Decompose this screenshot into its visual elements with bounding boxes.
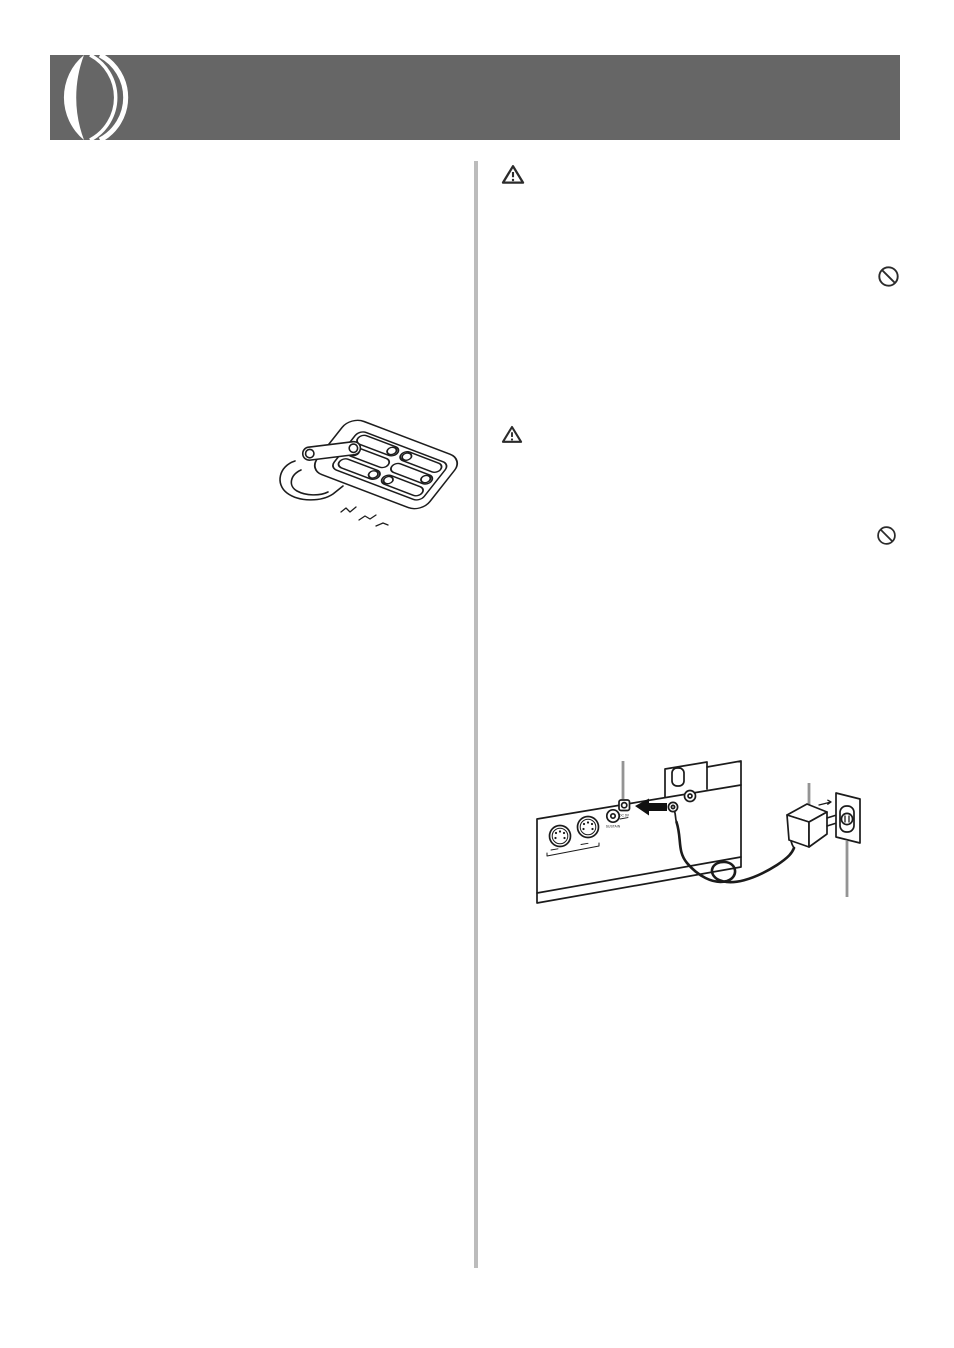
header-graphic	[50, 55, 900, 140]
sustain-jack-label: SUSTAIN	[606, 825, 621, 829]
dc-9v-jack: DC 9V	[619, 800, 630, 819]
manual-page: SUSTAIN DC 9V	[0, 0, 954, 1348]
warning-triangle-icon	[501, 164, 525, 185]
wall-outlet	[836, 793, 860, 843]
ac-adaptor	[787, 800, 835, 848]
column-divider	[474, 161, 478, 1268]
header-bar-background	[50, 55, 900, 140]
dc-jack-label: DC 9V	[619, 814, 630, 818]
prohibition-icon	[876, 525, 897, 546]
page-header-bar	[50, 55, 900, 140]
figure-marks	[341, 507, 388, 526]
power-connection-figure: SUSTAIN DC 9V	[535, 755, 875, 910]
compartment-panel	[309, 416, 463, 512]
warning-triangle-icon	[501, 425, 523, 444]
prohibition-icon	[877, 265, 900, 288]
battery-compartment-figure	[275, 406, 465, 541]
